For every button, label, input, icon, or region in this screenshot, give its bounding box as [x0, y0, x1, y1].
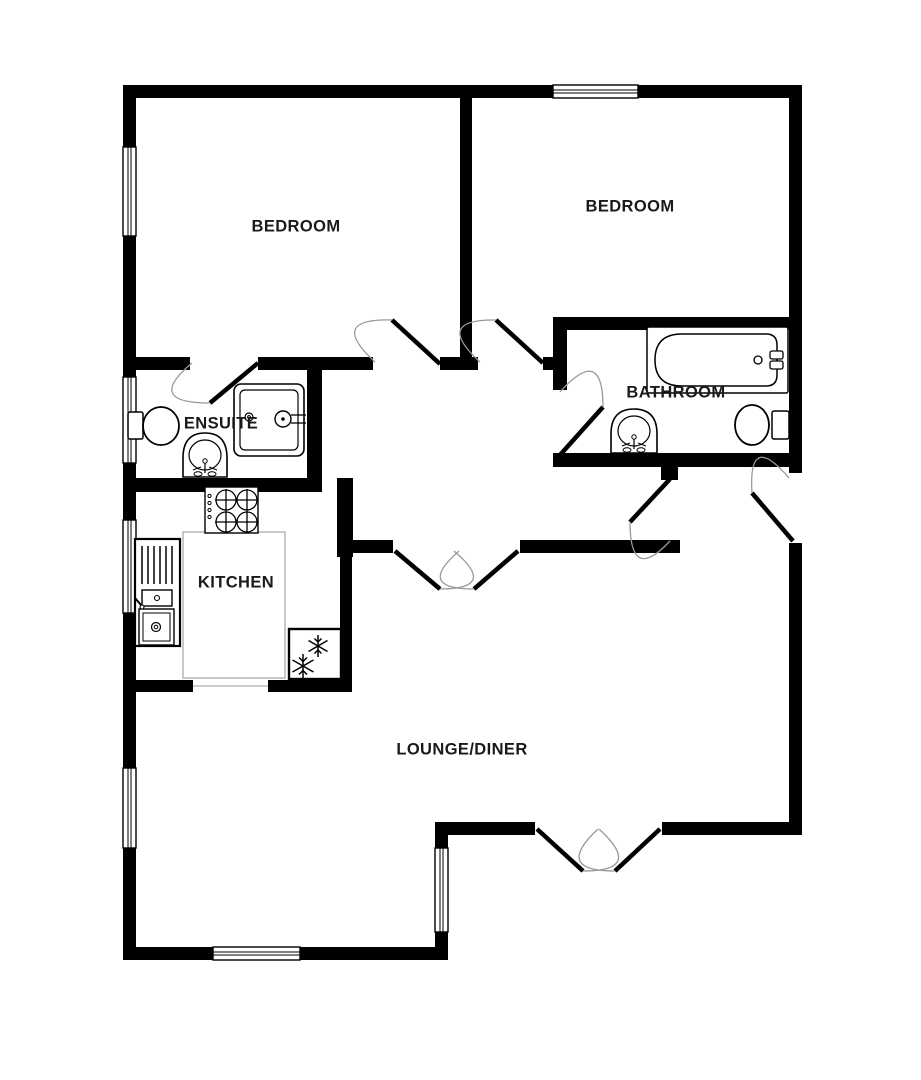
kitchen-sink-unit: [135, 539, 180, 646]
wall-bedroom1-bottom-a: [123, 357, 190, 370]
ensuite-toilet: [128, 407, 179, 445]
stove-hob: [205, 487, 258, 533]
wall-bedroom-divider: [460, 98, 472, 357]
wall-corridor-post: [661, 465, 678, 480]
door-bedroom-right: [460, 320, 543, 363]
ensuite-sink: [183, 433, 227, 477]
wall-top: [123, 85, 802, 98]
window-bedroom-left: [123, 147, 136, 236]
windows: [123, 85, 638, 960]
french-doors-lounge: [537, 829, 660, 871]
wall-bathroom-left: [553, 317, 567, 390]
wall-lounge-top-left: [337, 540, 393, 553]
wall-kitchen-bottom-right: [268, 680, 352, 692]
wall-bathroom-bottom: [553, 453, 790, 467]
wall-hall-post: [440, 357, 478, 370]
wall-bottomright-right-seg: [662, 822, 802, 835]
fridge-freezer: [289, 629, 341, 679]
wall-kitchen-bottom-left: [123, 680, 193, 692]
window-lounge-side: [435, 848, 448, 932]
double-doors-hall-lounge: [395, 551, 518, 589]
wall-bottomright-left-seg: [435, 822, 535, 835]
bathroom-sink: [611, 409, 657, 453]
floor-plan-drawing: [0, 0, 921, 1080]
room-label-kitchen: KITCHEN: [198, 574, 274, 593]
window-lounge-bottom: [213, 947, 300, 960]
room-label-lounge-diner: LOUNGE/DINER: [396, 741, 527, 760]
wall-right-upper: [789, 85, 802, 473]
room-label-bathroom: BATHROOM: [626, 384, 725, 403]
room-label-bedroom-right: BEDROOM: [586, 198, 675, 217]
bathroom-toilet: [735, 405, 789, 445]
wall-ensuite-right: [307, 358, 322, 492]
floor-plan: BEDROOM BEDROOM BATHROOM ENSUITE KITCHEN…: [0, 0, 921, 1080]
wall-lounge-top-right: [520, 540, 680, 553]
window-lounge-left: [123, 768, 136, 848]
window-bedroom-right-top: [553, 85, 638, 98]
door-side-entry: [752, 457, 793, 541]
wall-right-lower: [789, 543, 802, 835]
kitchen-counter: [183, 532, 285, 686]
room-label-ensuite: ENSUITE: [184, 415, 258, 434]
room-label-bedroom-left: BEDROOM: [252, 218, 341, 237]
